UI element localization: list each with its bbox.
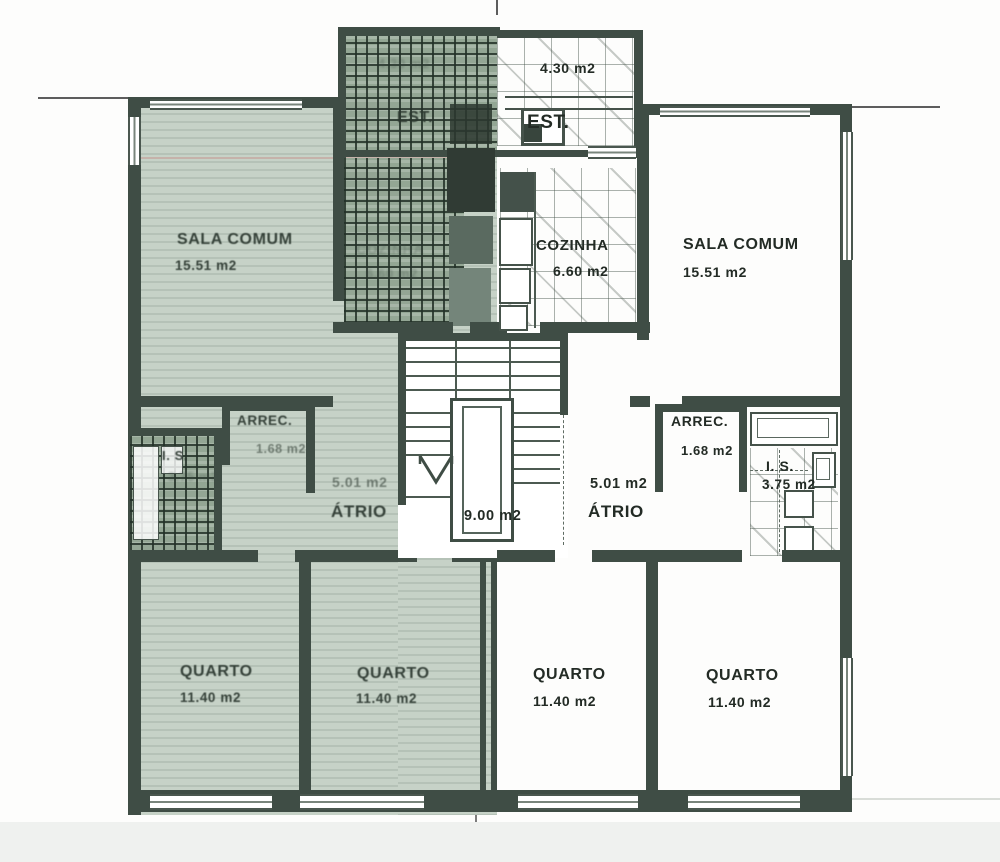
wall-segment [398,333,568,341]
kitchen-right-counter [499,268,531,304]
kitchen-right-sink [499,305,528,331]
stair-tread [406,412,450,414]
window-segment [841,132,853,260]
wall-segment [398,333,406,505]
wall-segment [637,115,649,340]
room-label-quarto1-left: QUARTO [180,663,253,681]
stray-scan-line [852,798,1000,800]
window-segment [128,117,141,165]
room-area-atrio-right: 5.01 m2 [590,476,647,492]
room-area-sala-right: 15.51 m2 [683,264,747,280]
window-segment [150,99,302,110]
stair-tread [406,440,450,442]
wall-segment [497,550,555,562]
wall-segment [497,30,643,38]
wall-segment [592,550,742,562]
stair-tread [455,341,457,398]
kitchen-left-stove-smudge [447,148,495,212]
window-segment [518,794,638,810]
kitchen-right-stove [500,172,534,212]
stair-tread [514,482,560,484]
stair-tread [514,440,560,442]
wall-segment [540,322,650,333]
room-label-quarto1-right: QUARTO [533,666,606,684]
window-segment [588,146,636,159]
room-area-arrec-left: 1.68 m2 [256,442,306,456]
stair-tread [406,361,560,363]
room-label-quarto2-right: QUARTO [706,667,779,685]
wall-segment [214,428,222,554]
room-area-cozinha-right: 6.60 m2 [553,263,609,279]
room-area-est-right: 4.30 m2 [540,60,596,76]
wall-segment [222,403,315,411]
room-area-quarto2-right: 11.40 m2 [708,694,771,710]
door-swing-dashed [563,415,564,545]
stair-tread [509,341,511,398]
wall-segment [306,403,315,493]
wall-segment [497,150,589,157]
room-area-arrec-right: 1.68 m2 [681,443,733,458]
room-label-atrio-left: ÁTRIO [331,502,387,522]
wall-segment [655,404,663,492]
wall-segment [782,550,852,562]
room-label-sala-left: SALA COMUM [177,231,293,249]
wall-segment [299,562,311,790]
room-area-atrio-left: 5.01 m2 [332,474,388,490]
room-label-cozinha-left: COZINHA [356,241,424,257]
room-label-quarto2-left: QUARTO [357,665,430,683]
wall-segment [222,403,230,465]
room-label-cozinha-right: COZINHA [536,237,609,254]
room-area-sala-left: 15.51 m2 [175,258,237,273]
window-segment [150,794,272,810]
room-label-is-left: I. S. [162,448,188,463]
wall-segment [739,404,747,492]
bottom-scan-band [0,822,1000,862]
stair-tread [514,454,560,456]
stair-tread [514,468,560,470]
stair-tread [406,375,560,377]
stair-tread [406,496,450,498]
room-area-quarto1-right: 11.40 m2 [533,693,596,709]
window-segment [688,794,800,810]
room-label-arrec-left: ARREC. [237,413,292,428]
window-segment [660,106,810,117]
stair-hall-area: 9.00 m2 [464,508,521,524]
kitchen-left-fixture-smudge [449,216,493,264]
wall-segment [560,333,568,415]
room-label-atrio-right: ÁTRIO [588,502,644,522]
room-label-arrec-right: ARREC. [671,413,728,429]
wall-segment [338,27,500,36]
party-wall [480,550,486,790]
room-area-is-left: 3.75 m2 [168,470,218,484]
stair-tread [514,426,560,428]
laundry-tank-left-smudge [450,104,492,144]
stair-tread [406,426,450,428]
crop-mark-top [496,0,498,15]
room-area-quarto1-left: 11.40 m2 [180,690,241,705]
room-label-est-left: EST. [397,109,433,127]
room-area-est-left: 4.30 m2 [378,56,430,71]
bathtub-left [133,446,159,540]
room-label-est-right: EST. [527,112,570,134]
bathtub-right-inner [757,418,829,438]
stair-tread [406,389,560,391]
wall-segment [646,562,658,790]
wall-segment [128,550,258,562]
room-area-is-right: 3.75 m2 [762,477,816,492]
window-segment [841,658,853,776]
party-wall [491,550,497,790]
stair-tread [406,347,560,349]
room-label-is-right: I. S. [766,458,794,474]
stair-tread [514,412,560,414]
crop-mark-left [38,97,130,99]
wall-segment [470,322,497,333]
kitchen-right-fridge [499,218,533,266]
wall-segment [333,105,344,301]
sink-right-inner [816,458,830,480]
floor-plan-scan: SALA COMUM 15.51 m2 COZINHA 6.60 m2 EST.… [0,0,1000,862]
room-label-sala-right: SALA COMUM [683,236,799,254]
window-segment [300,794,424,810]
wall-segment [128,428,222,436]
kitchen-left-fixture-smudge [449,268,491,326]
room-area-quarto2-left: 11.40 m2 [356,691,417,706]
crop-mark-right [852,106,940,108]
wall-segment [630,396,650,407]
stair-direction-arrow [416,452,456,488]
wall-segment [655,404,747,412]
room-area-cozinha-left: 6.60 m2 [366,266,418,281]
wall-segment [333,322,453,333]
toilet-right [784,490,814,518]
